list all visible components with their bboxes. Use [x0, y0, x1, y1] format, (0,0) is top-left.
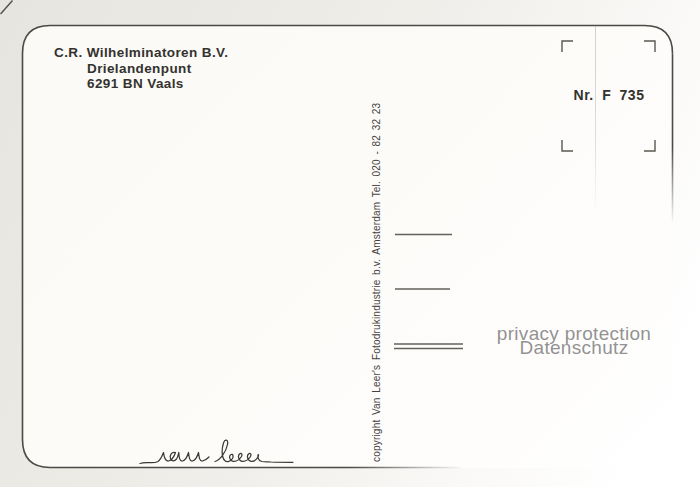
sender-postal-city: 6291 BN Vaals: [54, 76, 228, 92]
sender-company: C.R. Wilhelminatoren B.V.: [54, 45, 228, 61]
card-number: Nr. F 735: [562, 87, 656, 103]
scan-corner-mark: [1, 1, 13, 15]
privacy-watermark: privacy protection Datenschutz: [468, 327, 680, 354]
sender-imprint: C.R. Wilhelminatoren B.V. Drielandenpunt…: [54, 45, 228, 92]
printer-copyright-line: copyright Van Leer's Fotodrukindustrie b…: [371, 38, 382, 462]
sender-location: Drielandenpunt: [54, 61, 228, 77]
